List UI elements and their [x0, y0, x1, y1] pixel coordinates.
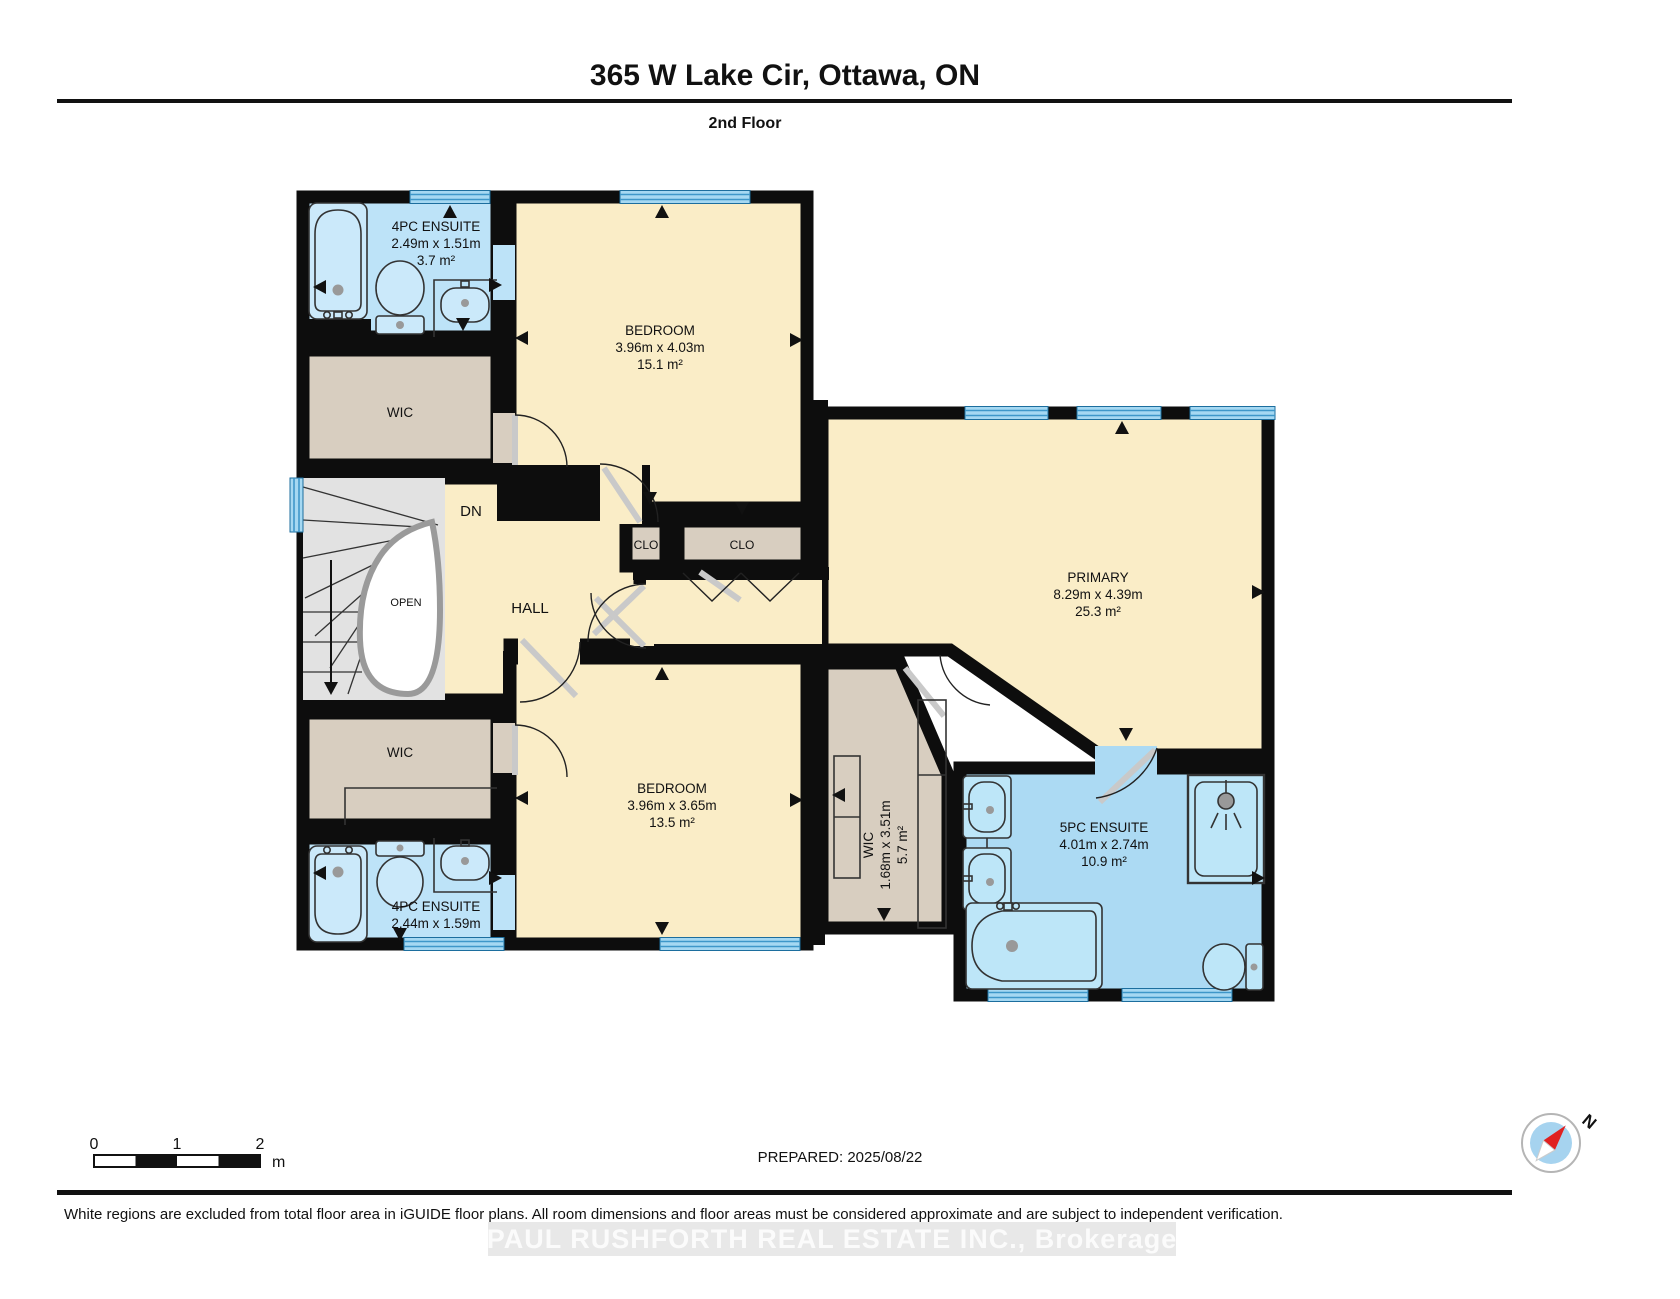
room-label: 4PC ENSUITE — [392, 899, 481, 914]
wall-passage-top — [633, 567, 829, 580]
room-dims: 8.29m x 4.39m — [1053, 587, 1142, 602]
window — [410, 191, 490, 204]
room-label: WIC — [387, 405, 413, 420]
scale-bar: 0 1 2 m — [90, 1136, 286, 1171]
header-divider — [57, 99, 1512, 103]
window — [620, 191, 750, 204]
compass-north-label: N — [1578, 1111, 1600, 1133]
room-label: 5PC ENSUITE — [1060, 820, 1149, 835]
room-label: BEDROOM — [637, 781, 707, 796]
compass-icon: N — [1522, 1111, 1600, 1172]
door-opening-ensuite4-bottom — [493, 875, 515, 930]
room-label: HALL — [511, 600, 549, 617]
brokerage-watermark: PAUL RUSHFORTH REAL ESTATE INC., Brokera… — [487, 1224, 1178, 1254]
window — [1122, 989, 1232, 1002]
bathtub-icon — [309, 846, 367, 942]
room-dims: 2.49m x 1.51m — [391, 236, 480, 251]
wall-tub-alcove — [297, 319, 371, 344]
scale-tick-2: 2 — [256, 1136, 265, 1153]
room-wic-bottom — [303, 713, 497, 825]
room-area: 10.9 m² — [1081, 854, 1127, 869]
sink-icon — [963, 776, 1011, 838]
toilet-icon — [1203, 944, 1263, 990]
room-dims: 4.01m x 2.74m — [1059, 837, 1148, 852]
toilet-icon — [376, 841, 424, 907]
room-area: 5.7 m² — [895, 825, 910, 864]
room-area: 3.7 m² — [417, 253, 456, 268]
room-dims: 3.96m x 3.65m — [627, 798, 716, 813]
footer-divider — [57, 1190, 1512, 1195]
sink-icon — [963, 848, 1011, 910]
room-label: WIC — [861, 832, 876, 858]
scale-tick-1: 1 — [173, 1136, 182, 1153]
room-label: CLO — [730, 538, 755, 552]
footer-disclaimer: White regions are excluded from total fl… — [64, 1206, 1283, 1223]
window-vertical — [290, 478, 303, 532]
room-label: PRIMARY — [1067, 570, 1128, 585]
bathtub-icon — [966, 903, 1102, 989]
window — [965, 407, 1048, 420]
window — [660, 938, 800, 951]
door-opening-wic-top — [493, 413, 515, 463]
window — [1190, 407, 1275, 420]
stairs — [303, 478, 445, 700]
stairs-open-label: OPEN — [390, 597, 421, 609]
door-opening-ensuite4-top — [493, 245, 515, 300]
page-title: 365 W Lake Cir, Ottawa, ON — [590, 59, 980, 92]
room-label: CLO — [634, 538, 659, 552]
door-opening-wic-bottom — [493, 723, 515, 773]
room-area: 15.1 m² — [637, 357, 683, 372]
floor-plan-page: 365 W Lake Cir, Ottawa, ON 2nd Floor — [0, 0, 1680, 1299]
wall-patch — [806, 400, 828, 580]
room-label: 4PC ENSUITE — [392, 219, 481, 234]
room-dims: 1.68m x 3.51m — [878, 800, 893, 889]
scale-tick-0: 0 — [90, 1136, 99, 1153]
room-label: WIC — [387, 745, 413, 760]
toilet-icon — [376, 261, 424, 334]
door-opening-ensuite5 — [1095, 746, 1157, 777]
room-label: BEDROOM — [625, 323, 695, 338]
room-dims: 2.44m x 1.59m — [391, 916, 480, 931]
prepared-date: PREPARED: 2025/08/22 — [758, 1149, 923, 1166]
bathtub-icon — [309, 203, 367, 319]
floor-plan-canvas: 365 W Lake Cir, Ottawa, ON 2nd Floor — [0, 0, 1680, 1299]
stairs-dn-label: DN — [460, 503, 482, 520]
room-area: 25.3 m² — [1075, 604, 1121, 619]
window — [1077, 407, 1161, 420]
room-dims: 3.96m x 4.03m — [615, 340, 704, 355]
window — [988, 989, 1088, 1002]
window — [404, 938, 504, 951]
room-area: 13.5 m² — [649, 815, 695, 830]
scale-unit: m — [272, 1154, 285, 1171]
passage-hall-primary — [646, 580, 822, 650]
floor-label: 2nd Floor — [709, 115, 782, 132]
shower-icon — [1188, 775, 1264, 883]
